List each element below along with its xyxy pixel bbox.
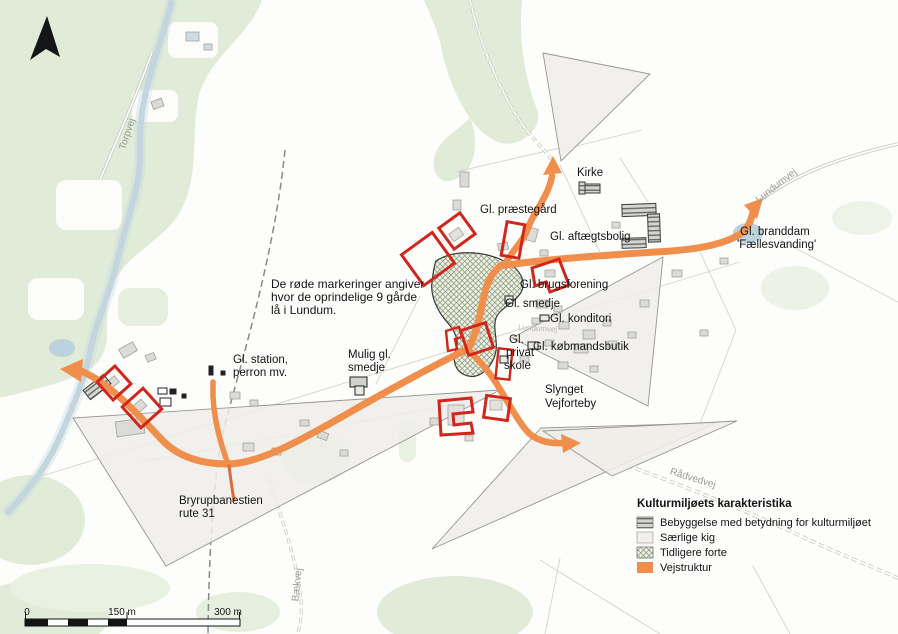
note-line-1: De røde markeringer angiver	[271, 277, 424, 291]
building	[430, 418, 439, 425]
meadow	[761, 266, 829, 310]
legend-swatch-orange-icon	[637, 562, 653, 573]
label-mulig-smedje-1: Mulig gl.	[348, 349, 391, 361]
legend-item-label: Vejstruktur	[660, 562, 712, 574]
legend-title: Kulturmiljøets karakteristika	[637, 498, 792, 510]
legend-item-label: Særlige kig	[660, 532, 715, 544]
heritage-building	[648, 214, 661, 242]
label-brugsforening: Gl. brugsforening	[520, 279, 608, 291]
mulig-smedje-building	[355, 386, 364, 395]
clearing	[28, 278, 84, 320]
label-slynget-2: Vejforteby	[545, 398, 596, 410]
church-tower	[579, 182, 585, 194]
building	[340, 450, 348, 456]
legend-item-label: Tidligere forte	[660, 547, 727, 559]
building	[250, 400, 258, 406]
label-bryrupbanestien-2: rute 31	[179, 508, 215, 520]
building	[204, 44, 212, 50]
building	[300, 420, 309, 426]
building	[628, 332, 636, 338]
building	[453, 200, 461, 210]
station-building	[158, 388, 167, 394]
legend-swatch-light-icon	[637, 532, 653, 543]
station-building	[182, 394, 186, 398]
pond	[49, 339, 75, 357]
building	[583, 330, 595, 339]
station-platform	[209, 366, 213, 375]
label-branddam: Gl. branddam	[740, 226, 810, 238]
building	[590, 366, 598, 372]
station-building	[221, 371, 225, 375]
scale-label-end: 300 m	[214, 607, 242, 618]
scale-bar-segment	[108, 619, 127, 626]
label-konditori: Gl. konditori	[550, 313, 611, 325]
building	[612, 222, 620, 228]
label-privatskole-2: privat	[506, 347, 535, 359]
building	[540, 250, 548, 256]
scale-bar-segment	[68, 619, 88, 626]
label-kirke: Kirke	[577, 167, 603, 179]
legend-item-saerlige-kig: Særlige kig	[637, 532, 715, 544]
label-koebmandsbutik: Gl. købmandsbutik	[533, 341, 629, 353]
label-station-2: perron mv.	[233, 367, 287, 379]
building	[700, 330, 708, 336]
legend-swatch-crosshatch-icon	[637, 547, 653, 558]
label-aftaegtsbolig: Gl. aftægtsbolig	[550, 231, 631, 243]
legend-item-bebyggelse: Bebyggelse med betydning for kulturmiljø…	[637, 517, 871, 529]
meadow	[10, 564, 170, 612]
konditori-building	[540, 315, 549, 321]
legend-item-vejstruktur: Vejstruktur	[637, 562, 712, 574]
building	[243, 443, 254, 451]
scale-label-mid: 150 m	[108, 607, 136, 618]
station-building	[170, 389, 176, 394]
label-branddam-2: 'Fællesvanding'	[737, 239, 816, 251]
label-mulig-smedje-2: smedje	[348, 362, 385, 374]
legend-item-label: Bebyggelse med betydning for kulturmiljø…	[660, 517, 871, 529]
building	[640, 300, 649, 307]
label-station-1: Gl. station,	[233, 354, 288, 366]
building	[230, 392, 240, 399]
scale-bar-segment	[25, 619, 48, 626]
building	[465, 435, 473, 441]
meadow	[832, 201, 892, 235]
building	[490, 400, 502, 410]
label-smedje: Gl. smedje	[505, 298, 560, 310]
meadow	[118, 288, 168, 326]
legend-swatch-hatched-icon	[637, 517, 653, 528]
station-building	[160, 398, 171, 406]
map-canvas: Kirke Gl. præstegård Gl. aftægtsbolig Gl…	[0, 0, 898, 634]
building	[672, 270, 682, 277]
clearing	[56, 180, 122, 230]
legend-item-forte: Tidligere forte	[637, 547, 727, 559]
scale-bar-body	[25, 619, 240, 626]
note-line-3: lå i Lundum.	[271, 303, 336, 317]
building	[720, 258, 728, 264]
label-slynget-1: Slynget	[545, 384, 584, 396]
building	[460, 172, 469, 187]
building	[545, 270, 555, 277]
label-bryrupbanestien-1: Bryrupbanestien	[179, 495, 263, 507]
building	[558, 362, 568, 369]
note-line-2: hvor de oprindelige 9 gårde	[271, 290, 417, 304]
map-svg: Kirke Gl. præstegård Gl. aftægtsbolig Gl…	[0, 0, 898, 634]
label-privatskole-1: Gl.	[509, 334, 524, 346]
label-privatskole-3: skole	[504, 360, 531, 372]
label-praestegaard: Gl. præstegård	[480, 204, 557, 216]
building	[186, 32, 199, 41]
